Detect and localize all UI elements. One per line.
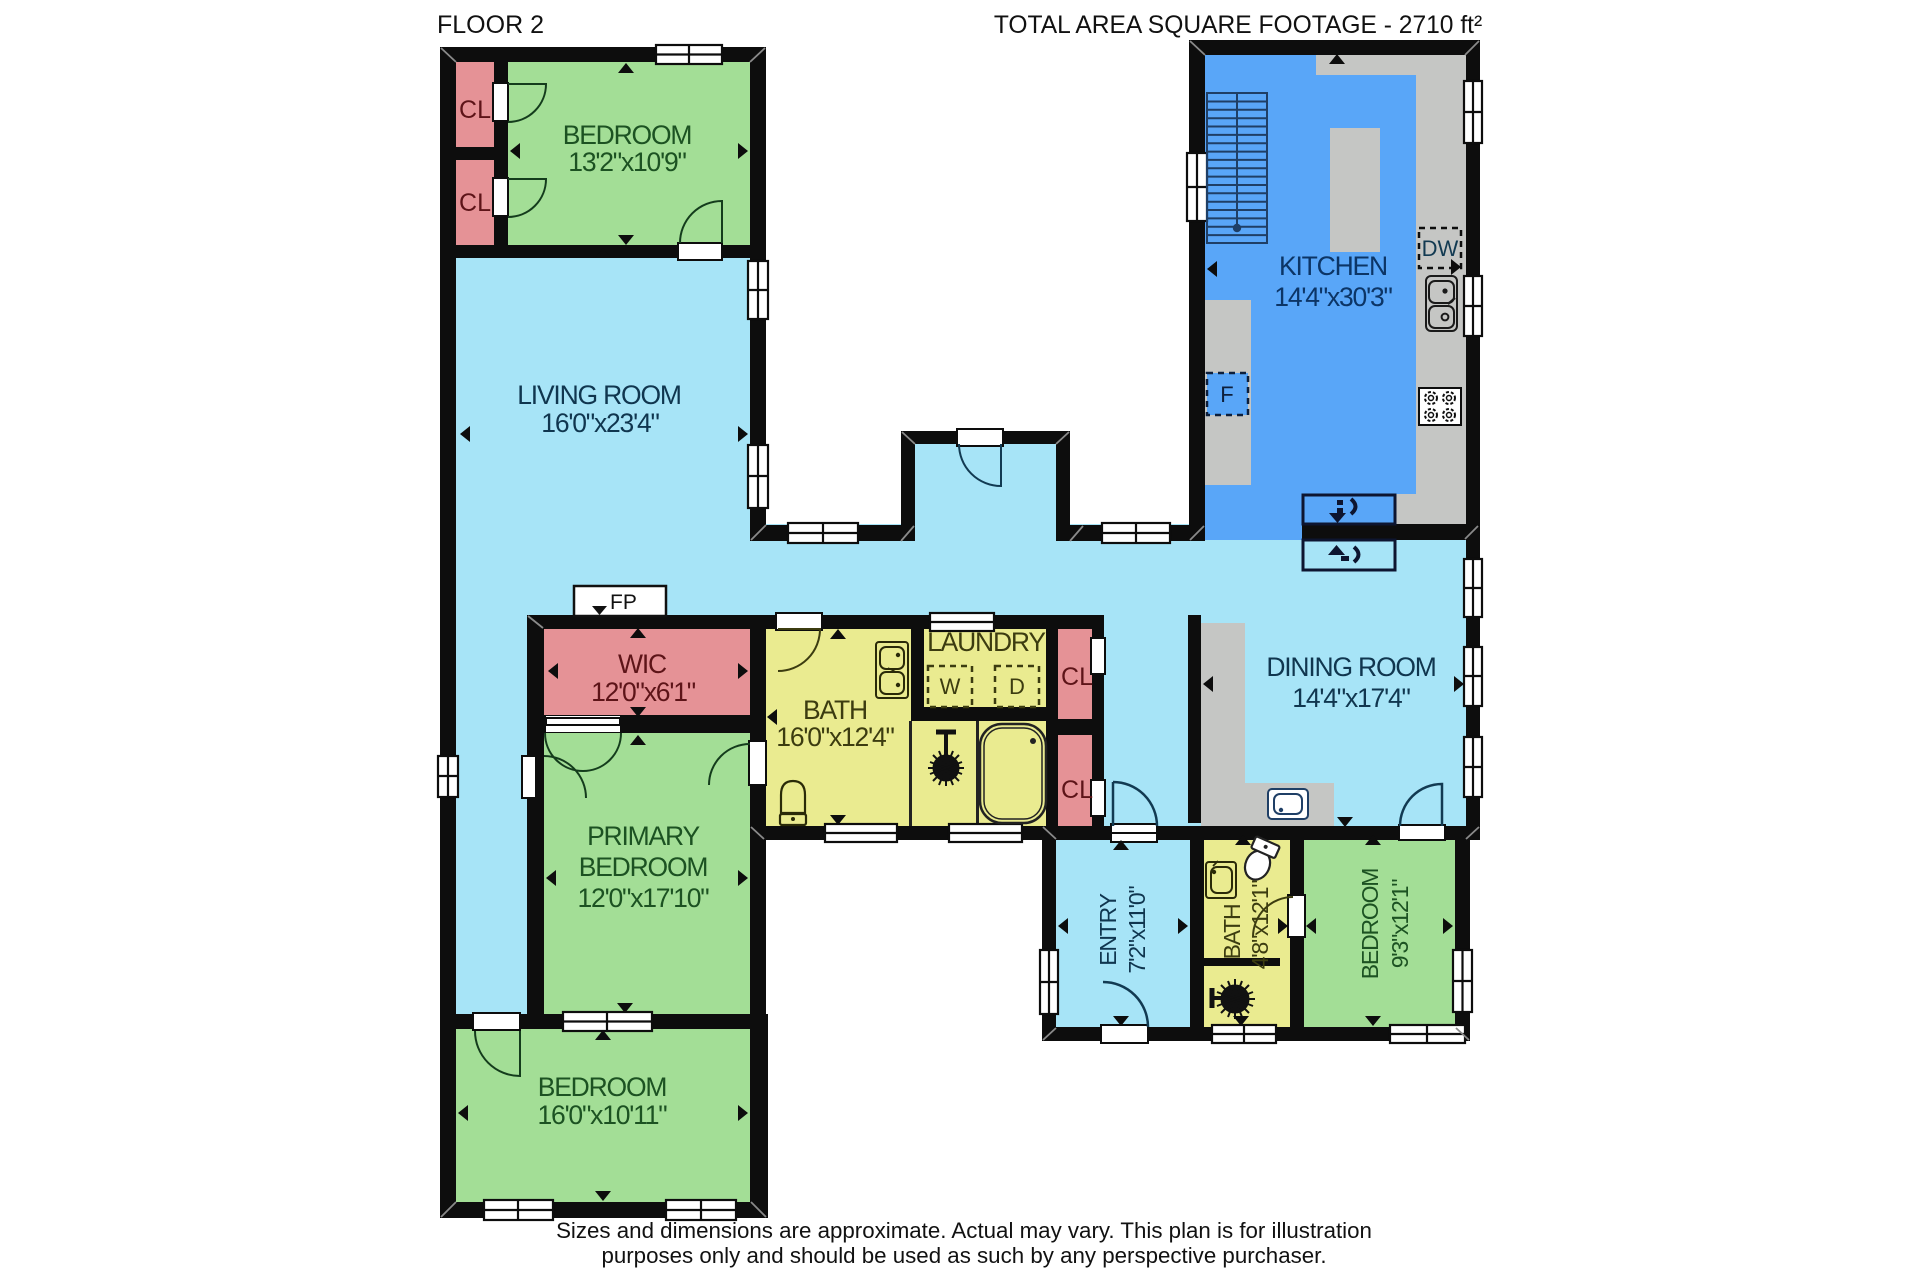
svg-text:CL: CL [1061, 776, 1093, 804]
svg-text:CL: CL [459, 96, 491, 124]
svg-text:W: W [940, 674, 961, 699]
svg-text:LAUNDRY: LAUNDRY [927, 627, 1046, 657]
svg-text:DINING ROOM: DINING ROOM [1266, 652, 1435, 682]
svg-text:14'4"x17'4": 14'4"x17'4" [1292, 683, 1410, 713]
svg-text:CL: CL [459, 189, 491, 217]
svg-text:12'0"x6'1": 12'0"x6'1" [591, 677, 696, 707]
svg-text:BEDROOM: BEDROOM [1357, 869, 1383, 979]
svg-text:BEDROOM: BEDROOM [538, 1072, 667, 1102]
svg-text:KITCHEN: KITCHEN [1279, 251, 1387, 281]
svg-text:4'8"x12'1": 4'8"x12'1" [1247, 880, 1273, 970]
svg-text:FLOOR 2: FLOOR 2 [437, 11, 544, 39]
svg-text:D: D [1009, 674, 1025, 699]
svg-text:ENTRY: ENTRY [1095, 893, 1121, 965]
svg-text:TOTAL AREA SQUARE FOOTAGE - 27: TOTAL AREA SQUARE FOOTAGE - 2710 ft² [994, 12, 1482, 39]
svg-text:16'0"x23'4": 16'0"x23'4" [541, 408, 659, 438]
svg-text:12'0"x17'10": 12'0"x17'10" [578, 883, 710, 913]
svg-text:PRIMARY: PRIMARY [587, 821, 700, 851]
svg-text:FP: FP [610, 591, 637, 614]
svg-text:DW: DW [1422, 236, 1459, 261]
svg-text:BATH: BATH [803, 695, 867, 725]
svg-text:13'2"x10'9": 13'2"x10'9" [568, 147, 686, 177]
svg-text:BEDROOM: BEDROOM [563, 120, 692, 150]
svg-text:BEDROOM: BEDROOM [579, 852, 708, 882]
svg-text:LIVING ROOM: LIVING ROOM [517, 380, 681, 410]
svg-text:14'4"x30'3": 14'4"x30'3" [1274, 282, 1392, 312]
svg-text:BATH: BATH [1219, 905, 1245, 960]
svg-text:7'2"x11'0": 7'2"x11'0" [1124, 886, 1150, 974]
svg-text:purposes only and should be us: purposes only and should be used as such… [601, 1243, 1326, 1268]
svg-text:WIC: WIC [618, 649, 667, 679]
svg-text:9'3"x12'1": 9'3"x12'1" [1387, 879, 1413, 969]
svg-text:CL: CL [1061, 663, 1093, 691]
svg-text:16'0"x10'11": 16'0"x10'11" [538, 1100, 668, 1130]
svg-text:Sizes and dimensions are appro: Sizes and dimensions are approximate. Ac… [556, 1218, 1372, 1243]
svg-text:16'0"x12'4": 16'0"x12'4" [776, 722, 894, 752]
svg-text:F: F [1220, 382, 1233, 407]
